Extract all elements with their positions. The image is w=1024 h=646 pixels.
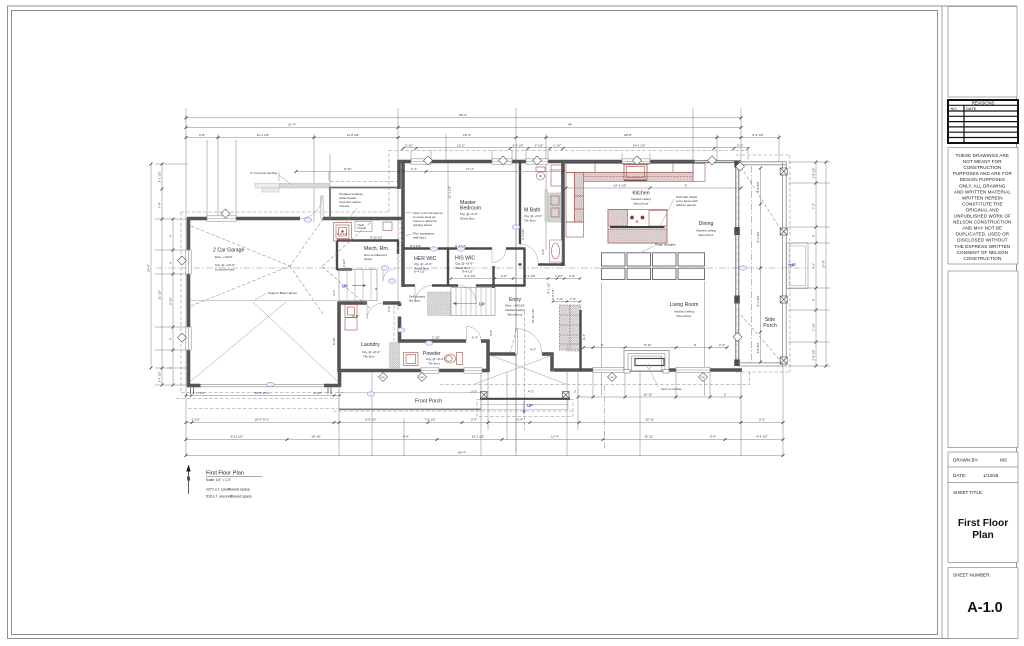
svg-text:16'-11": 16'-11" xyxy=(643,393,652,397)
svg-text:4'-2": 4'-2" xyxy=(528,390,534,394)
svg-text:2'-8": 2'-8" xyxy=(501,274,507,278)
svg-text:2'-4": 2'-4" xyxy=(411,167,417,171)
svg-text:NO.: NO. xyxy=(951,106,958,111)
svg-text:MS: MS xyxy=(1000,458,1007,463)
svg-text:Clg. @ +8'-0": Clg. @ +8'-0" xyxy=(362,350,380,354)
svg-text:21'-10": 21'-10" xyxy=(158,290,162,300)
svg-text:7'-6": 7'-6" xyxy=(557,297,563,301)
svg-text:Clg. @ +9'-0": Clg. @ +9'-0" xyxy=(455,262,473,266)
svg-text:2 Car Garage: 2 Car Garage xyxy=(213,248,245,254)
svg-text:4'-8 3/4": 4'-8 3/4" xyxy=(756,181,760,192)
svg-text:14'-1 1/2": 14'-1 1/2" xyxy=(613,184,626,188)
svg-text:PHD: PHD xyxy=(610,377,615,379)
svg-text:24'-8": 24'-8" xyxy=(147,264,151,272)
svg-text:Elev. +140.5': Elev. +140.5' xyxy=(215,255,233,259)
svg-text:4'-8": 4'-8" xyxy=(199,133,205,137)
svg-text:7'-8": 7'-8" xyxy=(158,202,162,208)
svg-text:3'-6": 3'-6" xyxy=(489,330,493,336)
svg-text:2'-4": 2'-4" xyxy=(719,343,725,347)
svg-text:Wood floor: Wood floor xyxy=(508,313,523,317)
svg-text:Entry: Entry xyxy=(509,297,522,303)
svg-text:Vent to outside: Vent to outside xyxy=(661,387,682,391)
svg-text:9'-10 1/2": 9'-10 1/2" xyxy=(370,236,383,240)
svg-text:7'-6 1/2": 7'-6 1/2" xyxy=(424,418,435,422)
svg-text:3'-1/2": 3'-1/2" xyxy=(535,144,544,148)
svg-text:1'-8 1/2": 1'-8 1/2" xyxy=(337,232,348,236)
svg-text:Kitchen: Kitchen xyxy=(632,191,649,197)
svg-text:27'-8": 27'-8" xyxy=(822,260,826,268)
svg-text:4'-8 3/4": 4'-8 3/4" xyxy=(756,342,760,353)
svg-text:DRAWN BY:: DRAWN BY: xyxy=(953,458,979,463)
svg-text:8'-8 1/2": 8'-8 1/2" xyxy=(365,418,376,422)
svg-text:28'-8": 28'-8" xyxy=(624,133,632,137)
svg-text:4'-6": 4'-6" xyxy=(541,249,545,255)
svg-text:4" Concrete landing: 4" Concrete landing xyxy=(250,171,277,175)
svg-text:SHEET TITLE:: SHEET TITLE: xyxy=(953,490,983,495)
svg-text:2'-8 1/2": 2'-8 1/2" xyxy=(551,289,555,300)
svg-text:Ridge skylights: Ridge skylights xyxy=(655,243,676,247)
svg-text:space: space xyxy=(364,257,373,261)
svg-text:15'-10 1/2": 15'-10 1/2" xyxy=(531,309,535,324)
svg-text:ducting below.: ducting below. xyxy=(413,223,433,227)
svg-text:8'-11": 8'-11" xyxy=(644,343,652,347)
svg-text:1/13/25: 1/13/25 xyxy=(983,473,999,478)
svg-text:3'-3": 3'-3" xyxy=(759,418,765,422)
svg-text:1'-1/2": 1'-1/2" xyxy=(192,418,201,422)
svg-text:Bedroom: Bedroom xyxy=(460,206,481,212)
svg-text:Clg. @ +9'-0": Clg. @ +9'-0" xyxy=(426,357,444,361)
svg-text:9'-1 3/4": 9'-1 3/4" xyxy=(756,295,760,306)
svg-text:3'-1 1/2": 3'-1 1/2" xyxy=(158,171,162,182)
svg-text:PHD: PHD xyxy=(701,377,706,379)
svg-text:11'-1 1/2": 11'-1 1/2" xyxy=(448,186,452,199)
svg-text:Dining: Dining xyxy=(699,221,714,227)
svg-text:18'-4": 18'-4" xyxy=(463,133,471,137)
svg-text:M Bath: M Bath xyxy=(524,208,541,214)
svg-text:Clg. @ +9'-0": Clg. @ +9'-0" xyxy=(414,262,432,266)
svg-text:1271 s.f. conditioned space: 1271 s.f. conditioned space xyxy=(206,488,250,492)
svg-text:9'-4": 9'-4" xyxy=(582,334,586,340)
svg-text:516 s.f. unconditioned space: 516 s.f. unconditioned space xyxy=(206,495,252,499)
svg-text:PHD: PHD xyxy=(381,377,386,379)
svg-text:PHD: PHD xyxy=(420,377,425,379)
svg-text:cabinet panels.: cabinet panels. xyxy=(676,203,697,207)
svg-text:4'-0": 4'-0" xyxy=(332,290,336,296)
svg-text:22'-11": 22'-11" xyxy=(645,418,654,422)
svg-text:SHEET NUMBER:: SHEET NUMBER: xyxy=(953,573,991,578)
svg-text:Tile floor: Tile floor xyxy=(428,362,440,366)
svg-text:UP: UP xyxy=(479,302,485,307)
svg-text:2'-4 1/2": 2'-4 1/2" xyxy=(521,229,525,240)
svg-text:Scale: 1/4" = 1'-0": Scale: 1/4" = 1'-0" xyxy=(206,478,231,482)
svg-text:4'-4 1/2": 4'-4 1/2" xyxy=(756,435,767,439)
svg-text:Concrete floor: Concrete floor xyxy=(215,268,234,272)
svg-text:55'-4": 55'-4" xyxy=(459,113,467,117)
svg-text:Mech. Rm.: Mech. Rm. xyxy=(364,246,389,252)
svg-text:N: N xyxy=(187,477,191,483)
svg-text:DATE:: DATE: xyxy=(953,473,966,478)
svg-text:44': 44' xyxy=(568,123,572,127)
svg-text:Vaulted ceiling: Vaulted ceiling xyxy=(505,308,525,312)
svg-text:7'-6": 7'-6" xyxy=(570,297,576,301)
svg-text:UP: UP xyxy=(527,403,533,408)
svg-text:Clg. @ +9'-0": Clg. @ +9'-0" xyxy=(524,214,542,218)
svg-text:Wood floor: Wood floor xyxy=(677,314,692,318)
svg-text:4'-11": 4'-11" xyxy=(352,314,360,318)
svg-text:9'-4 1/2": 9'-4 1/2" xyxy=(464,274,475,278)
svg-text:1'-8 1/2": 1'-8 1/2" xyxy=(812,167,816,178)
svg-text:Wood floor: Wood floor xyxy=(460,217,475,221)
svg-text:7'-2": 7'-2" xyxy=(812,203,816,209)
svg-text:First Floor: First Floor xyxy=(958,518,1008,529)
svg-text:14'-2 1/2": 14'-2 1/2" xyxy=(632,144,645,148)
svg-text:Plan: Plan xyxy=(972,530,994,541)
svg-text:14'-10": 14'-10" xyxy=(311,435,321,439)
svg-text:4'-2": 4'-2" xyxy=(812,263,816,269)
svg-text:9'-2 1/2": 9'-2 1/2" xyxy=(524,274,535,278)
svg-text:6'-6": 6'-6" xyxy=(403,435,409,439)
svg-text:Wood floor: Wood floor xyxy=(699,233,714,237)
svg-text:11'-8 3/4": 11'-8 3/4" xyxy=(347,133,360,137)
svg-text:55'-4": 55'-4" xyxy=(458,451,466,455)
svg-text:Tile floor: Tile floor xyxy=(363,355,375,359)
svg-text:11'-1 1/4": 11'-1 1/4" xyxy=(257,133,270,137)
svg-text:9'-4 1/2": 9'-4 1/2" xyxy=(462,270,473,274)
svg-text:DATE: DATE xyxy=(966,106,977,111)
svg-text:Front Porch: Front Porch xyxy=(415,399,442,405)
svg-text:Living Room: Living Room xyxy=(670,302,699,308)
svg-text:2'-8": 2'-8" xyxy=(387,306,391,312)
svg-text:3 1/2": 3 1/2" xyxy=(342,259,346,267)
svg-text:First Floor Plan: First Floor Plan xyxy=(206,471,244,477)
svg-text:2'-4": 2'-4" xyxy=(569,274,575,278)
svg-text:1'-10": 1'-10" xyxy=(553,144,561,148)
svg-text:9'-11 1/2": 9'-11 1/2" xyxy=(231,435,244,439)
svg-text:2'-10": 2'-10" xyxy=(405,144,413,148)
svg-text:21'-4": 21'-4" xyxy=(288,123,296,127)
svg-text:9'-1 3/4": 9'-1 3/4" xyxy=(756,231,760,242)
svg-text:1'-1/2": 1'-1/2" xyxy=(313,391,322,395)
svg-text:wall (typ.): wall (typ.) xyxy=(413,236,426,240)
svg-text:Tile floor: Tile floor xyxy=(524,219,536,223)
svg-text:fire door: fire door xyxy=(409,299,420,303)
svg-text:Wood floor: Wood floor xyxy=(634,202,649,206)
svg-text:12'-4": 12'-4" xyxy=(551,435,559,439)
svg-text:2'-4 1/2": 2'-4 1/2" xyxy=(158,371,162,382)
svg-text:4'-2": 4'-2" xyxy=(530,348,536,352)
svg-text:6'-4 1/2": 6'-4 1/2" xyxy=(410,244,421,248)
svg-text:2'-4": 2'-4" xyxy=(472,336,478,340)
svg-text:17'-4": 17'-4" xyxy=(466,167,474,171)
svg-text:Clg. @ +9'-0": Clg. @ +9'-0" xyxy=(460,212,478,216)
svg-text:15'-11": 15'-11" xyxy=(644,435,653,439)
svg-text:2'-8 1/2": 2'-8 1/2" xyxy=(812,349,816,360)
svg-text:5'-10": 5'-10" xyxy=(332,337,336,345)
svg-text:Elev. +142.83': Elev. +142.83' xyxy=(505,304,525,308)
svg-text:2'-10": 2'-10" xyxy=(432,336,440,340)
svg-text:Vaulted ceiling: Vaulted ceiling xyxy=(631,197,651,201)
svg-text:6'-4 1/2": 6'-4 1/2" xyxy=(414,270,425,274)
svg-text:5'-4": 5'-4" xyxy=(710,435,716,439)
svg-text:8'-11": 8'-11" xyxy=(344,167,352,171)
svg-text:UP: UP xyxy=(342,284,348,289)
svg-text:Vaulted ceiling: Vaulted ceiling xyxy=(674,310,694,314)
svg-text:9'-1 1/2": 9'-1 1/2" xyxy=(547,282,551,293)
svg-text:1'-1/2": 1'-1/2" xyxy=(196,391,205,395)
svg-text:2'-4 1/2": 2'-4 1/2" xyxy=(512,144,523,148)
svg-text:Support Beam above: Support Beam above xyxy=(268,291,297,295)
svg-text:18'-0" R.O.: 18'-0" R.O. xyxy=(254,391,269,395)
svg-text:9'-10": 9'-10" xyxy=(169,297,173,305)
svg-text:A-1.0: A-1.0 xyxy=(967,600,1002,616)
svg-text:10'-2": 10'-2" xyxy=(457,144,465,148)
svg-text:Clg. @ +10'-6": Clg. @ +10'-6" xyxy=(215,263,235,267)
svg-text:Vaulted ceiling: Vaulted ceiling xyxy=(696,229,716,233)
svg-text:2'-2": 2'-2" xyxy=(737,144,743,148)
svg-text:UP: UP xyxy=(790,263,796,268)
svg-text:Porch: Porch xyxy=(763,323,777,329)
svg-text:18'-0" R.O.: 18'-0" R.O. xyxy=(254,418,269,422)
svg-text:9'-4 1/2": 9'-4 1/2" xyxy=(752,133,763,137)
svg-text:10'-1 1/2": 10'-1 1/2" xyxy=(471,435,484,439)
svg-text:5'-4": 5'-4" xyxy=(517,418,523,422)
svg-text:3'-9": 3'-9" xyxy=(471,418,477,422)
svg-text:7'-10": 7'-10" xyxy=(812,323,816,331)
svg-text:3'-3": 3'-3" xyxy=(471,390,477,394)
svg-text:exterior.: exterior. xyxy=(339,204,350,208)
svg-text:REVISIONS: REVISIONS xyxy=(972,100,995,105)
svg-text:1 1/2": 1 1/2" xyxy=(555,274,563,278)
svg-text:Laundry: Laundry xyxy=(361,342,380,348)
